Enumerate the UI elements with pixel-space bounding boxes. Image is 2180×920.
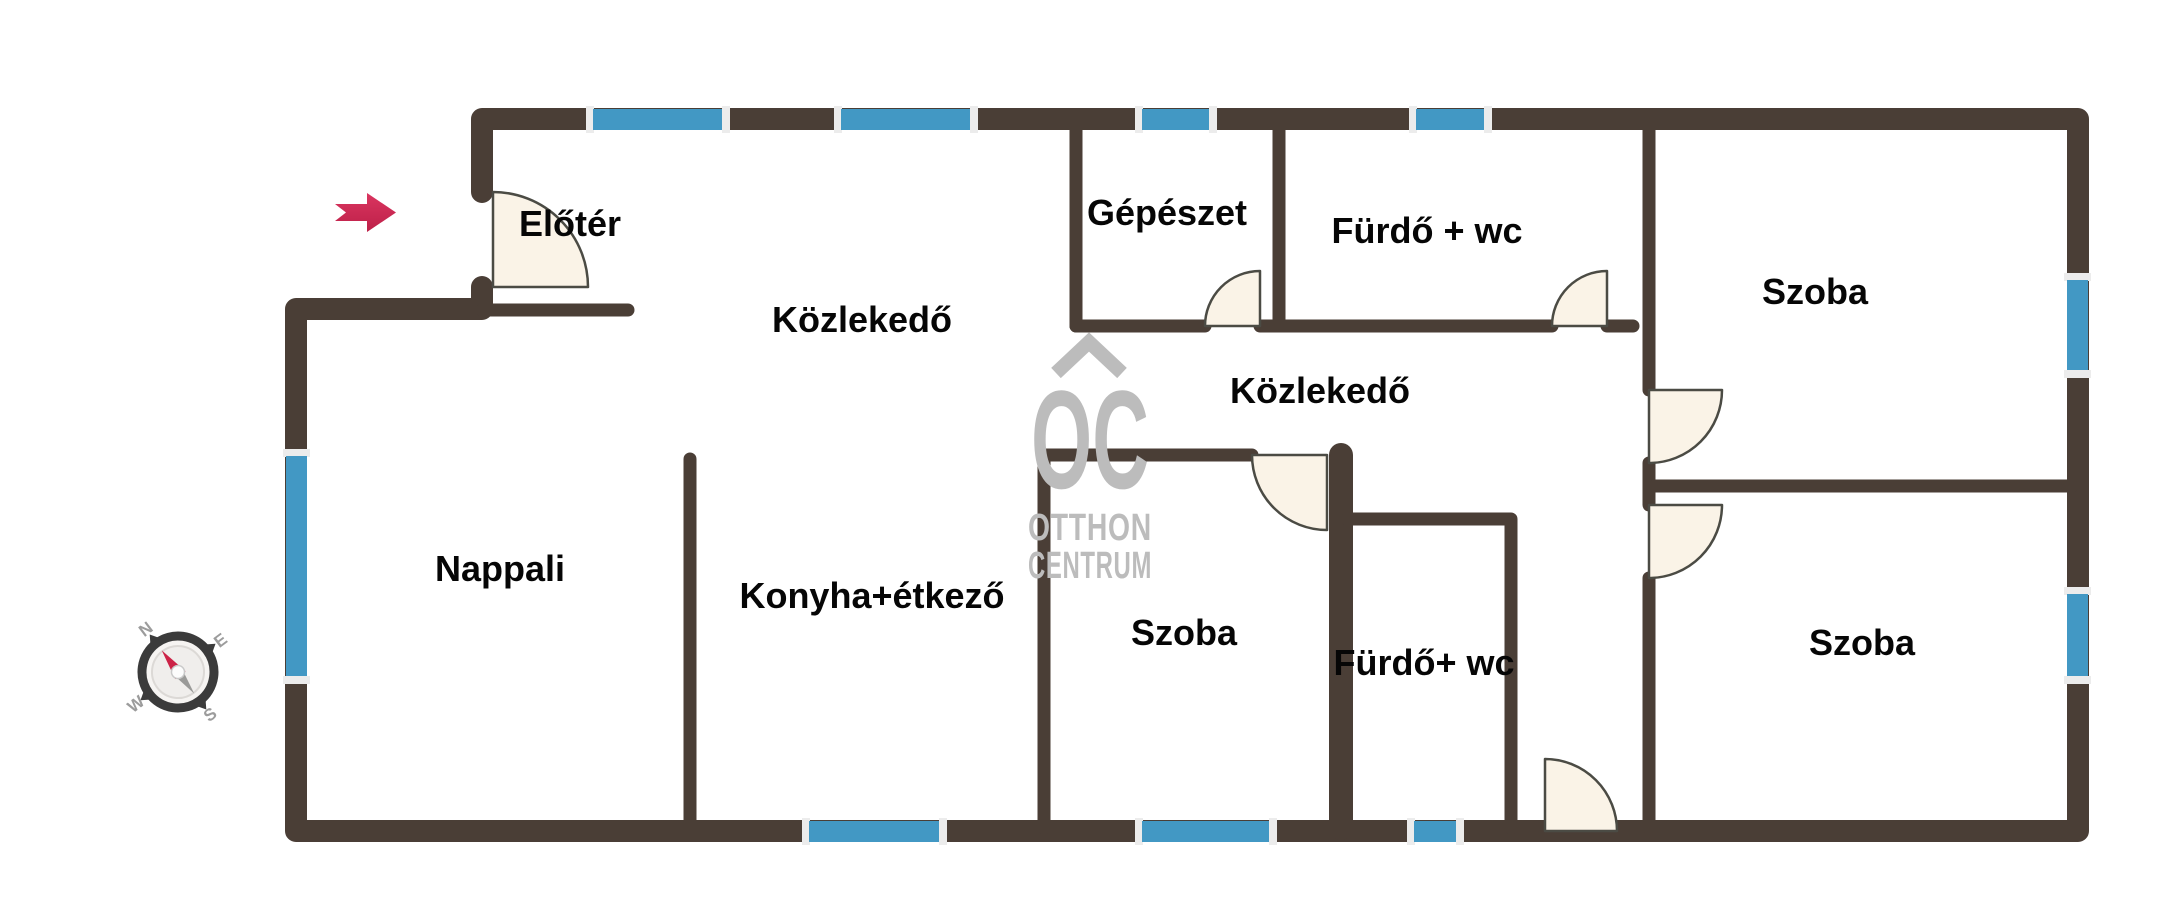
window — [586, 106, 730, 133]
room-label-gepeszet: Gépészet — [1087, 192, 1247, 233]
room-label-kozlekedo-kozepso: Közlekedő — [1230, 370, 1410, 411]
watermark-centrum: CENTRUM — [1028, 545, 1152, 587]
window — [1407, 818, 1464, 845]
window — [1135, 818, 1277, 845]
window — [1409, 106, 1492, 133]
upper-bathroom-door — [1552, 271, 1607, 326]
compass-rose-icon: N E S W — [91, 586, 262, 759]
entrance-arrow-icon — [335, 193, 396, 232]
watermark-otthon: OTTHON — [1028, 507, 1152, 549]
window — [1135, 106, 1217, 133]
lower-right-szoba-door — [1649, 505, 1722, 578]
watermark-oc: OC — [1031, 361, 1149, 518]
compass-s-label: S — [200, 704, 220, 726]
room-label-furdo-wc-also: Fürdő+ wc — [1333, 642, 1514, 683]
window — [283, 449, 310, 684]
window — [834, 106, 978, 133]
room-label-nappali: Nappali — [435, 548, 565, 589]
window — [2064, 273, 2091, 378]
room-label-szoba-kozepso: Szoba — [1131, 612, 1238, 653]
watermark-logo: OC OTTHON CENTRUM — [1028, 342, 1152, 587]
window — [2064, 587, 2091, 684]
room-label-furdo-wc-felso: Fürdő + wc — [1331, 210, 1522, 251]
room-label-kozlekedo-felso: Közlekedő — [772, 299, 952, 340]
room-label-szoba-jobb-also: Szoba — [1809, 622, 1916, 663]
room-label-szoba-jobb-felso: Szoba — [1762, 271, 1869, 312]
window — [802, 818, 947, 845]
floor-plan: OC OTTHON CENTRUM N E S W Előtér Közleke… — [0, 0, 2180, 920]
gepeszet-door — [1205, 271, 1260, 326]
floor-plan-drawing: OC OTTHON CENTRUM N E S W Előtér Közleke… — [0, 0, 2180, 920]
back-door — [1545, 759, 1617, 831]
middle-szoba-door — [1252, 455, 1327, 530]
room-label-konyha-etkezo: Konyha+étkező — [739, 575, 1004, 616]
room-label-eloter: Előtér — [519, 203, 621, 244]
upper-right-szoba-door — [1649, 390, 1722, 463]
